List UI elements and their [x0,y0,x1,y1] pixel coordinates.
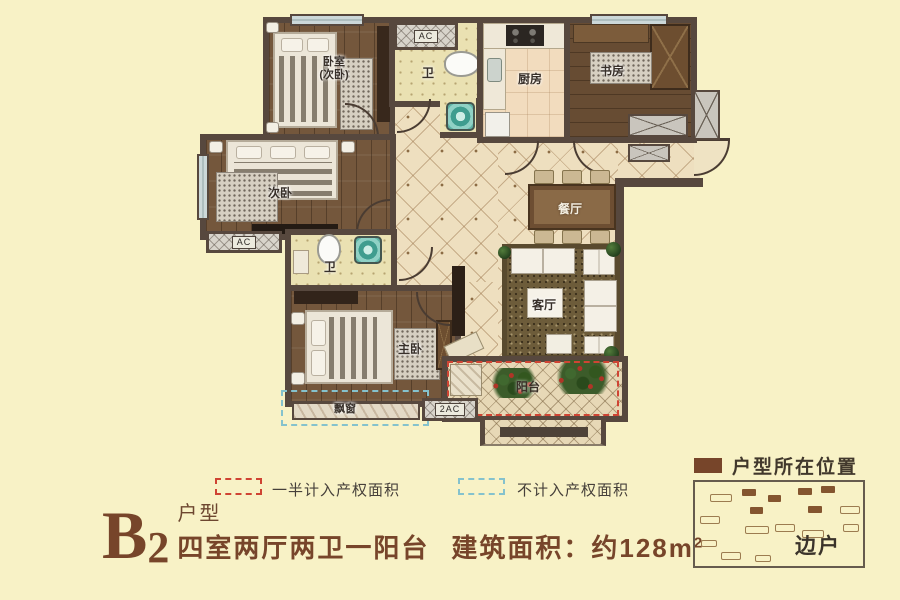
study-cabinet [628,114,688,137]
living-side-table [546,334,572,354]
dining-chair [590,230,610,244]
room-label-bedroom2: 次卧 [268,184,292,201]
floorplan: 卧室(次卧) 卫 厨房 书房 次卧 AC 卫 [0,0,900,460]
ledge-bench [500,427,588,437]
building-footprint-outline [843,524,859,532]
site-plan-box: 边户 [693,480,865,568]
utility-shaft [693,90,720,140]
bath1-toilet [444,51,480,77]
plant [498,246,511,259]
legend-excluded-swatch [458,478,505,495]
dining-chair [590,170,610,184]
master-dresser-top [294,291,358,304]
room-label-study: 书房 [600,62,624,79]
building-footprint [808,506,822,513]
unit-description: 四室两厅两卫一阳台建筑面积：约128m2 [177,528,704,565]
floorplan-page: { "title": { "code": "B", "code_sub": "2… [0,0,900,600]
room-label-living: 客厅 [532,296,556,313]
building-footprint-outline [700,516,720,524]
building-footprint [798,488,812,495]
building-footprint [821,486,835,493]
room-label-bay-window: 飘窗 [334,400,356,416]
kitchen-sink [487,58,502,82]
building-footprint [742,489,756,496]
building-footprint-outline [840,506,860,514]
room-label-bath2: 卫 [324,258,336,275]
building-footprint-outline [775,524,795,532]
living-tv-stand [452,266,465,336]
building-footprint-outline [701,540,717,547]
room-label-bath1: 卫 [422,64,434,81]
dining-chair [562,230,582,244]
nightstand [291,372,305,385]
legend-half-area-swatch [215,478,262,495]
nightstand [266,122,279,133]
study-wardrobe [650,24,690,90]
nightstand [209,141,223,153]
ac-label: AC [414,30,439,43]
location-heading: 户型所在位置 [732,452,858,479]
ac-platform-right: 2AC [422,398,478,421]
ac-label: 2AC [435,403,466,416]
plant [606,242,621,257]
ac-platform-top: AC [394,22,458,50]
location-swatch-icon [694,458,722,473]
kitchen-stove [506,25,544,46]
nightstand [341,141,355,153]
entry-door-arc [694,140,730,176]
living-chaise [584,280,617,332]
ac-label: AC [232,236,257,249]
wall-segment [615,178,703,187]
room-label-bedroom1: 卧室(次卧) [296,56,372,82]
living-sofa [511,248,575,274]
building-footprint-outline [710,494,732,502]
dining-chair [562,170,582,184]
location-legend: 户型所在位置 [694,452,858,479]
title-block: B2 户型 四室两厅两卫一阳台建筑面积：约128m2 [102,497,704,565]
unit-code: B [102,507,147,565]
master-bed [305,310,393,384]
nightstand [266,22,279,33]
nightstand [291,312,305,325]
bath2-washer [354,236,382,264]
building-footprint-outline [755,555,771,562]
building-footprint-outline [745,526,769,534]
room-label-kitchen: 厨房 [518,70,542,87]
dining-chair [534,170,554,184]
building-footprint [750,507,763,514]
dining-chair [534,230,554,244]
unit-type-label: 户型 [177,497,704,526]
study-desk [573,24,649,43]
bath2-vanity [293,250,309,274]
room-label-master: 主卧 [398,340,422,357]
bedroom1-window [290,14,364,26]
room-label-balcony: 阳台 [516,378,540,395]
kitchen-fridge [485,112,510,137]
ac-platform-left: AC [206,231,282,253]
bedroom2-window [197,154,209,220]
room-label-dining: 餐厅 [558,200,582,217]
unit-code-number: 2 [147,530,169,565]
building-footprint-outline [721,552,741,560]
washing-machine [446,102,475,131]
entry-shoe-cabinet [628,144,670,162]
side-unit-label: 边户 [795,530,841,560]
building-footprint [768,495,781,502]
